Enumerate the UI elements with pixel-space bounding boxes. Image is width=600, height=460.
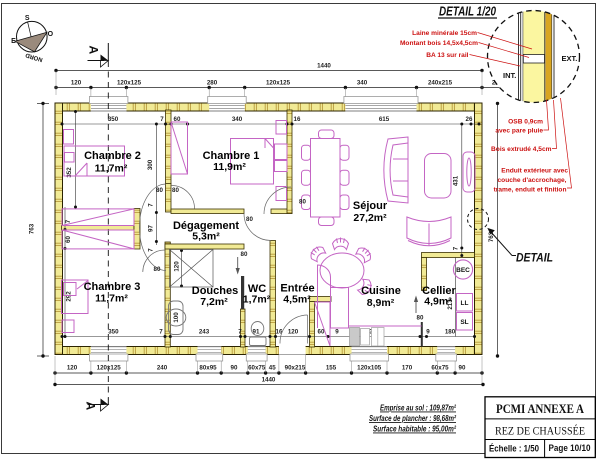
svg-text:300: 300: [147, 159, 154, 170]
svg-text:avec pare pluie: avec pare pluie: [495, 128, 543, 135]
svg-text:97: 97: [148, 225, 155, 232]
svg-text:trame, enduit et finition: trame, enduit et finition: [494, 187, 567, 194]
svg-text:5,3m²: 5,3m²: [192, 231, 220, 243]
svg-text:155: 155: [326, 365, 337, 372]
svg-text:80: 80: [154, 266, 161, 273]
svg-text:60: 60: [65, 236, 72, 243]
svg-text:170: 170: [402, 365, 413, 372]
svg-text:EXT.: EXT.: [562, 54, 578, 63]
svg-text:90: 90: [459, 365, 466, 372]
svg-text:REZ DE CHAUSSÉE: REZ DE CHAUSSÉE: [495, 424, 585, 438]
svg-text:Emprise au sol : 109,87m²: Emprise au sol : 109,87m²: [380, 403, 457, 413]
svg-text:80: 80: [241, 251, 248, 258]
svg-text:120x105: 120x105: [357, 365, 382, 372]
svg-text:7: 7: [148, 248, 155, 252]
svg-text:27,2m²: 27,2m²: [353, 212, 387, 224]
svg-text:80: 80: [246, 216, 253, 223]
svg-text:120x125: 120x125: [266, 80, 291, 87]
svg-text:1440: 1440: [262, 377, 276, 384]
svg-text:Laine minérale 15cm: Laine minérale 15cm: [412, 30, 477, 37]
svg-text:Enduit extérieur avec: Enduit extérieur avec: [501, 168, 568, 175]
svg-text:90: 90: [231, 365, 238, 372]
svg-text:120: 120: [288, 329, 299, 336]
svg-text:120: 120: [71, 80, 82, 87]
svg-text:45: 45: [269, 365, 276, 372]
svg-text:431: 431: [453, 175, 460, 186]
svg-text:240: 240: [157, 365, 168, 372]
svg-text:340: 340: [232, 116, 243, 123]
svg-text:615: 615: [379, 116, 390, 123]
svg-text:80x95: 80x95: [199, 365, 217, 372]
svg-text:Surface habitable : 95,00m²: Surface habitable : 95,00m²: [373, 424, 457, 434]
svg-text:120x125: 120x125: [97, 365, 122, 372]
svg-text:26: 26: [466, 116, 473, 123]
svg-text:7: 7: [65, 219, 72, 223]
svg-text:Séjour: Séjour: [353, 200, 388, 212]
svg-text:1,7m²: 1,7m²: [243, 294, 271, 306]
svg-text:60x75: 60x75: [431, 365, 449, 372]
svg-text:11,9m²: 11,9m²: [213, 161, 246, 173]
svg-text:240x215: 240x215: [428, 80, 453, 87]
svg-text:A: A: [84, 402, 98, 411]
svg-text:292: 292: [66, 291, 73, 302]
svg-text:90x215: 90x215: [285, 365, 306, 372]
svg-text:7,2m²: 7,2m²: [200, 296, 228, 308]
svg-text:9: 9: [335, 329, 339, 336]
svg-text:11,7m²: 11,7m²: [95, 163, 128, 175]
svg-text:80: 80: [417, 315, 424, 322]
svg-text:8,9m²: 8,9m²: [367, 297, 395, 309]
svg-text:4,5m²: 4,5m²: [283, 294, 311, 306]
svg-text:4,9m²: 4,9m²: [424, 296, 452, 308]
svg-text:280: 280: [207, 80, 218, 87]
svg-text:Chambre 2: Chambre 2: [84, 150, 141, 162]
svg-text:340: 340: [357, 80, 368, 87]
svg-text:LL: LL: [461, 300, 469, 307]
svg-text:BEC: BEC: [456, 267, 470, 274]
svg-text:350: 350: [108, 329, 119, 336]
svg-text:80: 80: [172, 187, 179, 194]
svg-text:Page 10/10: Page 10/10: [549, 443, 591, 454]
svg-text:11,7m²: 11,7m²: [95, 293, 128, 305]
svg-text:Surface de plancher : 98,68m²: Surface de plancher : 98,68m²: [369, 413, 457, 423]
svg-text:9: 9: [426, 329, 430, 336]
svg-text:A: A: [87, 46, 101, 55]
svg-text:Échelle : 1/50: Échelle : 1/50: [489, 444, 539, 454]
svg-text:7: 7: [453, 246, 460, 250]
svg-text:BA 13 sur rail: BA 13 sur rail: [426, 52, 468, 59]
svg-text:couche d'accrochage,: couche d'accrochage,: [498, 177, 567, 184]
svg-text:120: 120: [174, 261, 181, 272]
svg-text:243: 243: [199, 329, 210, 336]
svg-text:16: 16: [294, 116, 301, 123]
svg-text:7: 7: [238, 329, 242, 336]
svg-text:763: 763: [29, 223, 36, 234]
svg-text:60x75: 60x75: [248, 365, 266, 372]
svg-text:INT.: INT.: [503, 71, 516, 80]
svg-text:7: 7: [160, 116, 164, 123]
svg-text:7: 7: [148, 203, 155, 207]
svg-text:120x125: 120x125: [117, 80, 142, 87]
svg-text:180: 180: [445, 329, 456, 336]
svg-text:S: S: [25, 15, 30, 22]
svg-text:350: 350: [108, 116, 119, 123]
svg-text:Cuisine: Cuisine: [361, 285, 401, 297]
svg-text:DETAIL: DETAIL: [516, 253, 553, 265]
svg-text:Bois extrudé 4,5cm: Bois extrudé 4,5cm: [491, 146, 552, 153]
svg-text:Chambre 3: Chambre 3: [84, 281, 141, 293]
svg-text:100: 100: [173, 312, 180, 323]
svg-text:DETAIL 1/20: DETAIL 1/20: [439, 5, 496, 19]
svg-text:Montant bois 14,5x4,5cm: Montant bois 14,5x4,5cm: [400, 40, 478, 47]
svg-text:1440: 1440: [317, 63, 331, 70]
svg-text:E: E: [11, 38, 16, 45]
svg-text:O: O: [48, 31, 54, 38]
svg-text:80: 80: [156, 187, 163, 194]
svg-text:SL: SL: [460, 319, 468, 326]
svg-text:OSB 0,9cm: OSB 0,9cm: [508, 119, 543, 126]
svg-text:120: 120: [67, 365, 78, 372]
svg-text:PCMI ANNEXE A: PCMI ANNEXE A: [496, 401, 585, 416]
svg-text:7: 7: [159, 329, 163, 336]
svg-text:80: 80: [299, 199, 306, 206]
